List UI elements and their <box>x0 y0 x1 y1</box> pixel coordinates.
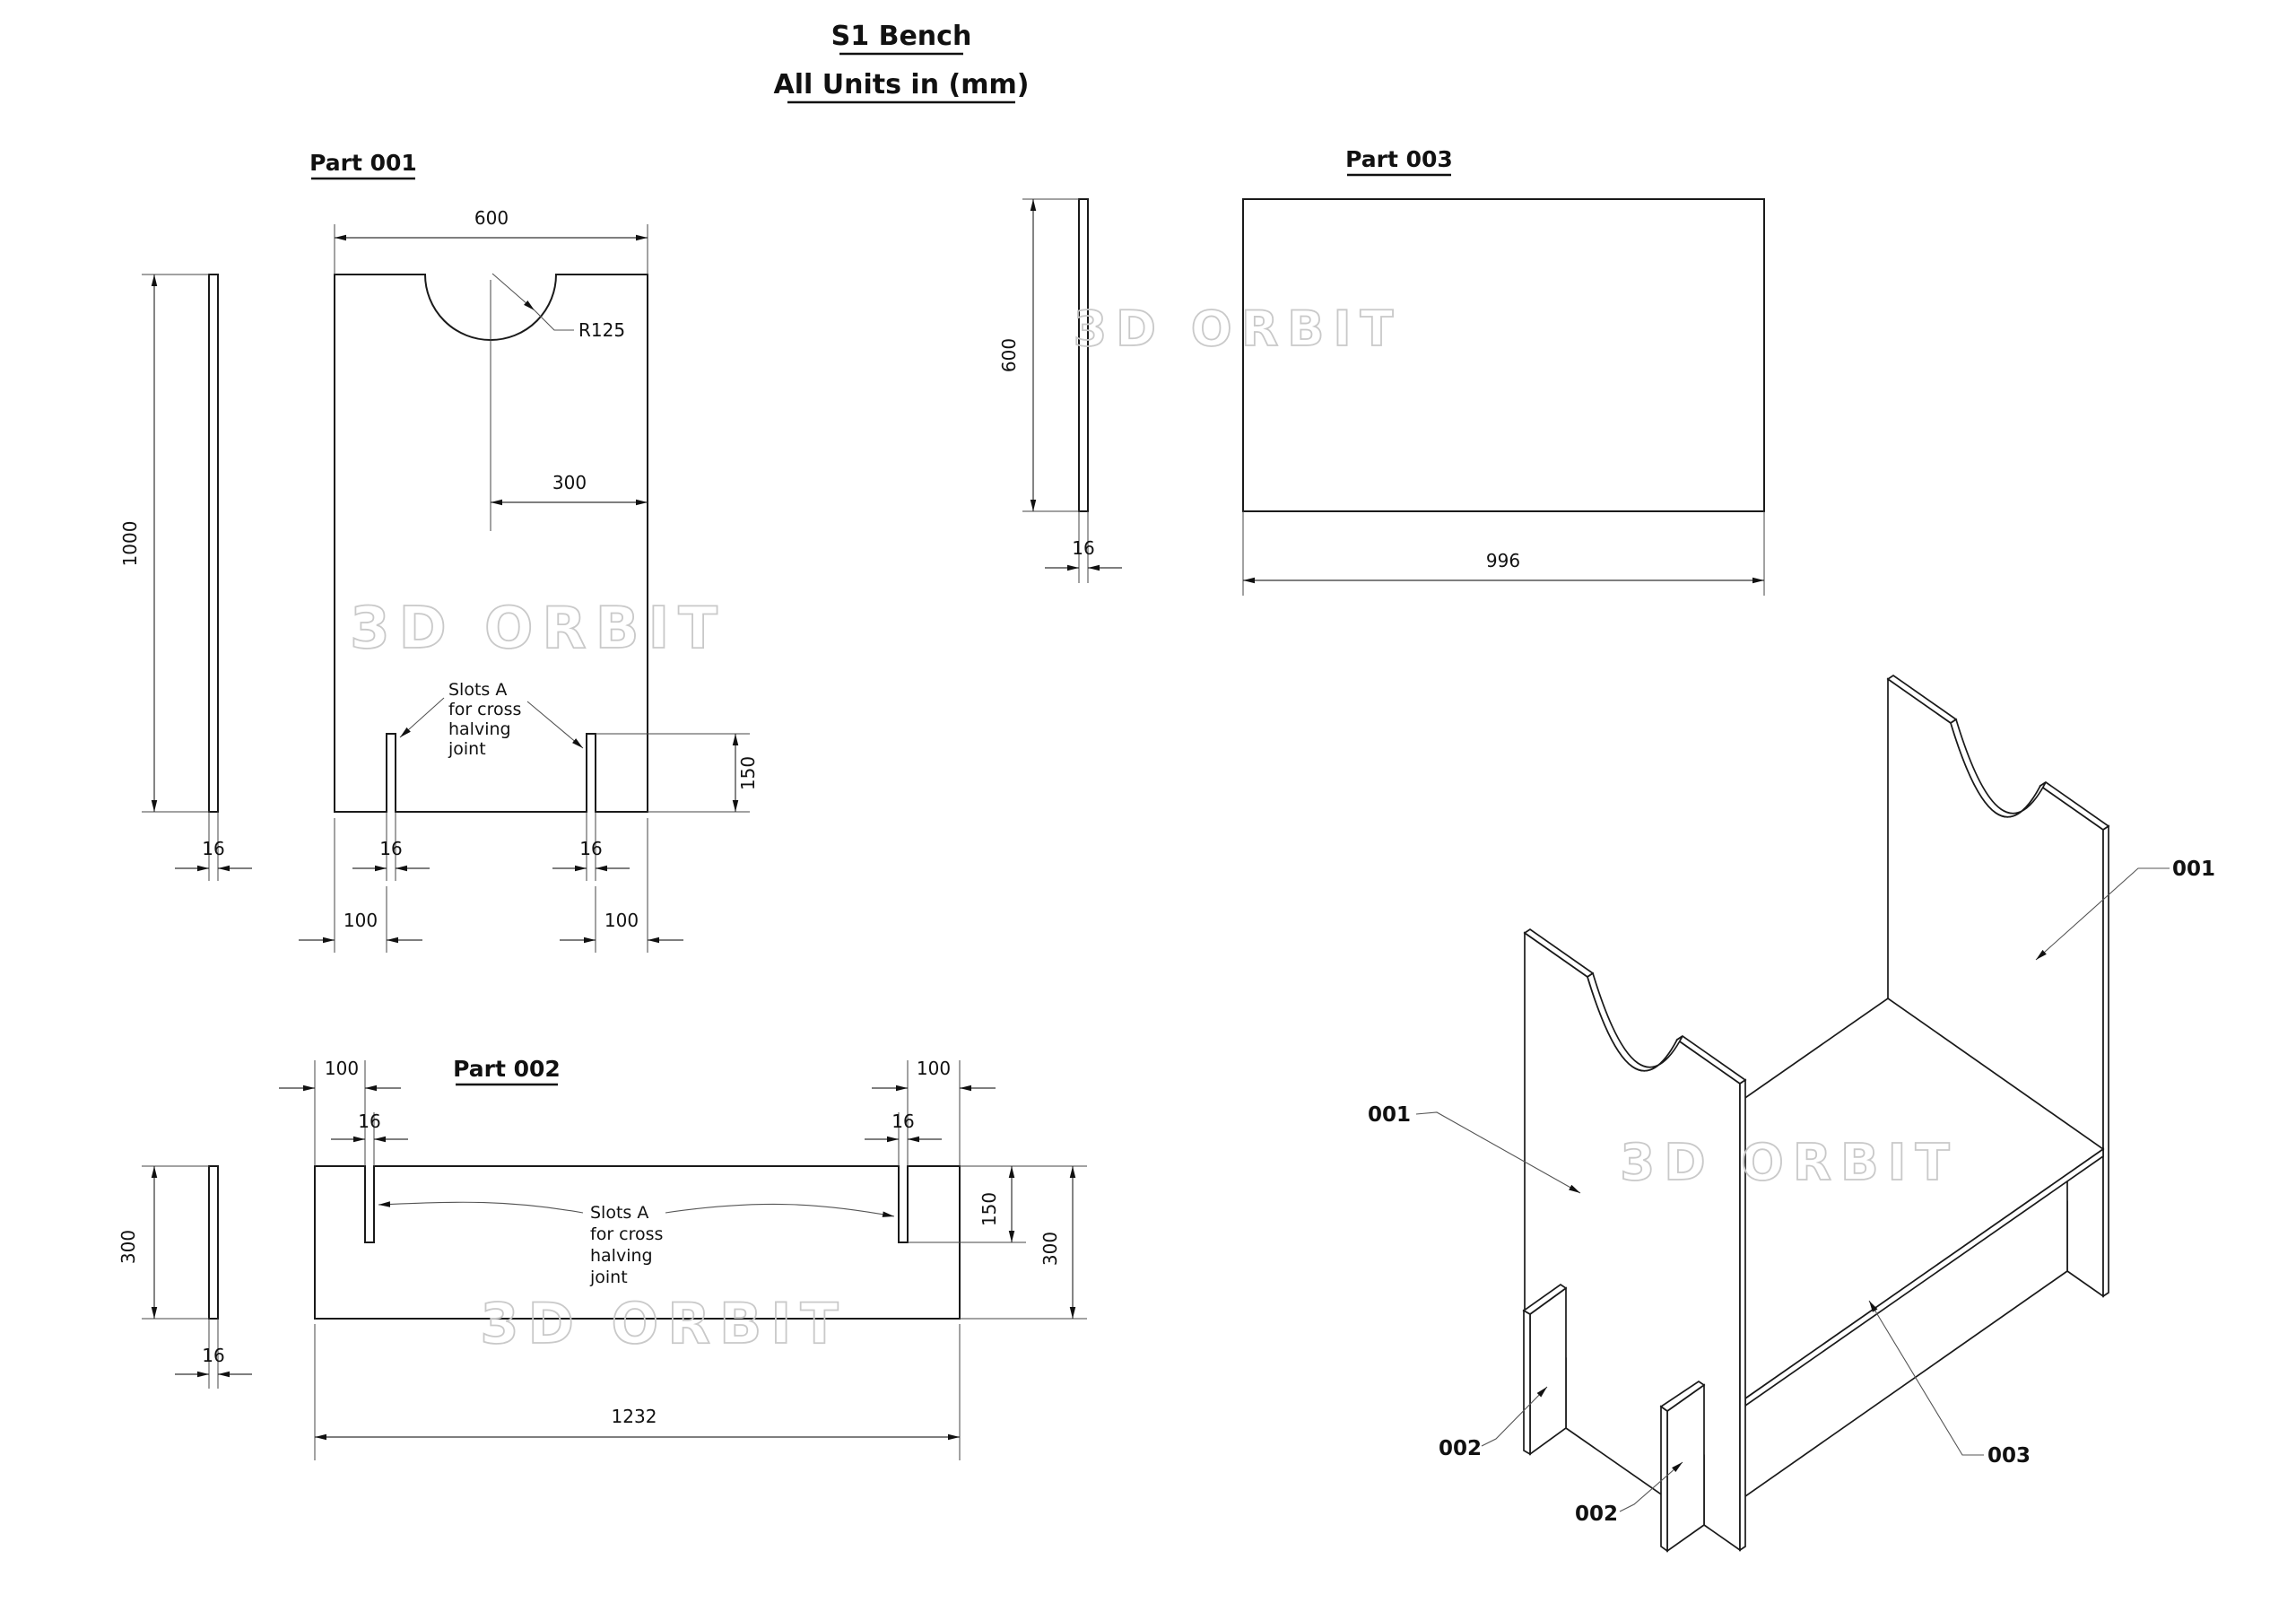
note-line: halving <box>448 719 511 739</box>
part-003-extension-lines <box>1022 199 1764 596</box>
main-title: S1 Bench All Units in (mm) <box>774 21 1030 102</box>
dim-600: 600 <box>474 207 509 229</box>
dim-16-thickness: 16 <box>202 1345 224 1366</box>
iso-rear-rail-end-face <box>1524 1311 1530 1454</box>
dim-16: 16 <box>1072 537 1094 559</box>
part-002-view: Part 002 300 16 100 16 100 16 150 300 12… <box>117 1056 1087 1460</box>
iso-front-panel-face <box>1525 933 1740 1550</box>
part-002-side-view <box>209 1166 218 1319</box>
iso-front-rail-end <box>1667 1385 1704 1551</box>
dim-100-left: 100 <box>325 1058 359 1079</box>
label-002-second: 002 <box>1575 1503 1618 1526</box>
note-leader-right <box>527 701 583 748</box>
note-line: Slots A <box>590 1203 648 1223</box>
part-002-title: Part 002 <box>453 1056 561 1082</box>
note-line: halving <box>590 1246 653 1266</box>
sheet-title: S1 Bench <box>831 21 972 52</box>
sheet-subtitle: All Units in (mm) <box>774 69 1030 100</box>
dim-300-right: 300 <box>1039 1232 1061 1266</box>
dim-300: 300 <box>552 472 587 493</box>
cad-canvas: S1 Bench All Units in (mm) Part 001 <box>0 0 2296 1603</box>
dim-100-right: 100 <box>604 910 639 931</box>
dim-16-slot-left: 16 <box>379 838 402 859</box>
note-line: for cross <box>590 1224 663 1244</box>
note-line: for cross <box>448 700 521 719</box>
note-line: Slots A <box>448 680 507 700</box>
drawing-sheet: S1 Bench All Units in (mm) Part 001 <box>0 0 2296 1603</box>
note-line: joint <box>589 1268 628 1287</box>
part-001-side-view <box>209 274 218 812</box>
dim-1000: 1000 <box>119 521 141 567</box>
part-002-slots-note: Slots A for cross halving joint <box>378 1202 894 1287</box>
part-001-view: Part 001 600 R125 300 1000 150 16 <box>119 150 759 953</box>
dim-600: 600 <box>998 338 1020 372</box>
dim-100-right: 100 <box>917 1058 951 1079</box>
part-003-title: Part 003 <box>1345 146 1453 172</box>
dim-16-slot-left: 16 <box>358 1111 380 1132</box>
label-002-first: 002 <box>1439 1437 1482 1460</box>
watermark-text: 3D ORBIT <box>350 596 726 662</box>
watermark-text: 3D ORBIT <box>1620 1134 1958 1192</box>
dim-16-slot-right: 16 <box>891 1111 914 1132</box>
dim-r125: R125 <box>578 319 625 341</box>
watermark-text: 3D ORBIT <box>1074 301 1403 357</box>
dim-300-left: 300 <box>117 1230 139 1264</box>
label-001-left: 001 <box>1368 1103 1411 1127</box>
dim-1232: 1232 <box>612 1406 657 1427</box>
note-leader-right <box>665 1204 894 1216</box>
dim-996: 996 <box>1486 550 1520 571</box>
isometric-assembly-view: 001 001 002 002 003 <box>1368 675 2215 1551</box>
part-001-extension-lines <box>142 224 750 953</box>
iso-rear-rail-end <box>1530 1288 1566 1454</box>
watermark-text: 3D ORBIT <box>480 1291 847 1356</box>
label-001-right: 001 <box>2172 858 2215 881</box>
dim-16-slot-right: 16 <box>579 838 602 859</box>
label-003: 003 <box>1987 1444 2031 1468</box>
dim-150: 150 <box>737 756 759 790</box>
dim-16-thickness: 16 <box>202 838 224 859</box>
note-leader-left <box>378 1202 583 1213</box>
dim-150: 150 <box>978 1192 1000 1226</box>
dim-100-left: 100 <box>344 910 378 931</box>
note-line: joint <box>448 739 486 759</box>
part-001-title: Part 001 <box>309 150 417 176</box>
radius-leader-tail <box>535 310 574 330</box>
part-001-slots-note: Slots A for cross halving joint <box>400 680 583 759</box>
radius-leader-arrow <box>492 274 535 310</box>
part-003-view: Part 003 600 16 996 <box>998 146 1764 596</box>
note-leader-left <box>400 698 444 737</box>
